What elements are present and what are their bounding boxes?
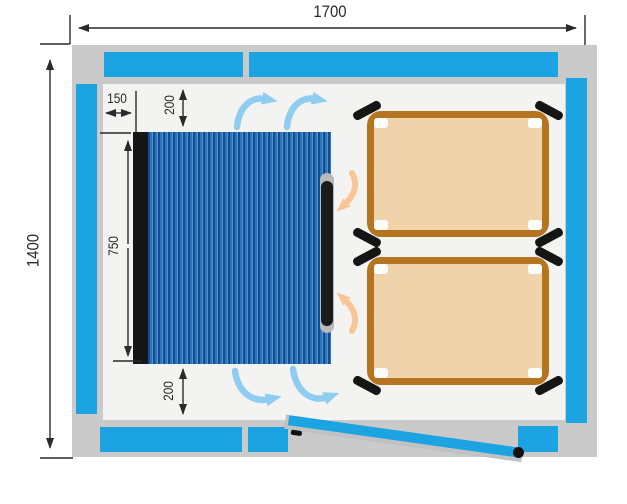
room-height-dimension-lines — [40, 44, 73, 458]
room-width-dimension-lines — [70, 15, 585, 45]
heater-offset-150-dimension-lines — [106, 91, 136, 133]
cold-airflow-arrow-icons — [235, 99, 328, 400]
dimension-and-airflow-overlay — [0, 0, 627, 504]
heater-length-750-dimension-lines — [100, 133, 141, 361]
warm-airflow-arrow-icons — [344, 173, 355, 331]
room-layout-diagram: 1700 1400 150 200 750 200 — [0, 0, 627, 504]
